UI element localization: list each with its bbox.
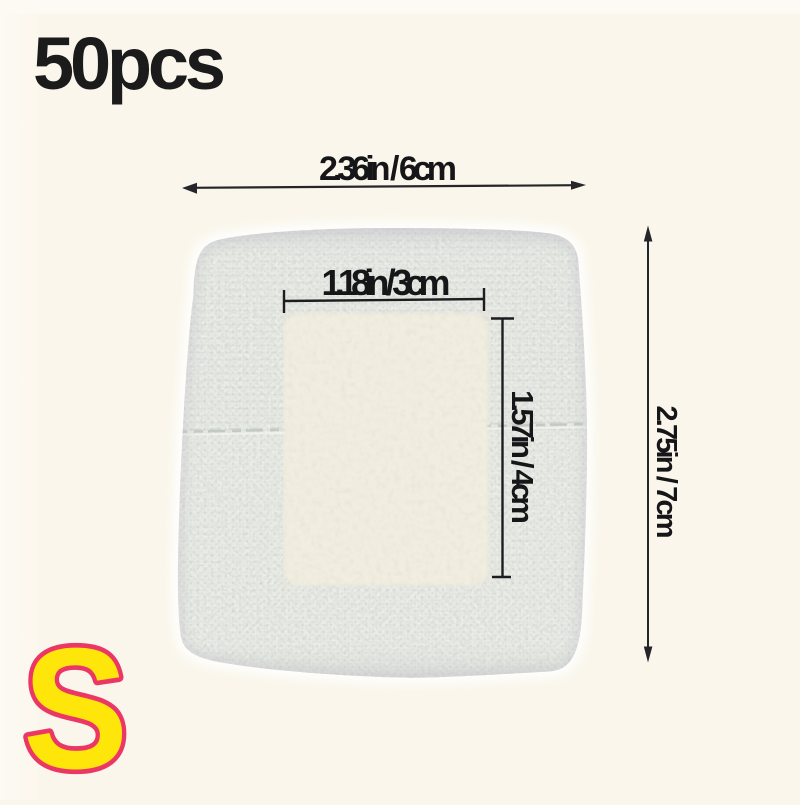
- svg-text:2.75in / 7cm: 2.75in / 7cm: [650, 406, 682, 539]
- svg-text:S: S: [23, 612, 128, 800]
- svg-text:1.57in / 4cm: 1.57in / 4cm: [505, 390, 540, 524]
- svg-text:2.36in / 6cm: 2.36in / 6cm: [319, 150, 457, 188]
- svg-text:50pcs: 50pcs: [33, 22, 226, 105]
- svg-text:1.18in / 3cm: 1.18in / 3cm: [322, 262, 451, 303]
